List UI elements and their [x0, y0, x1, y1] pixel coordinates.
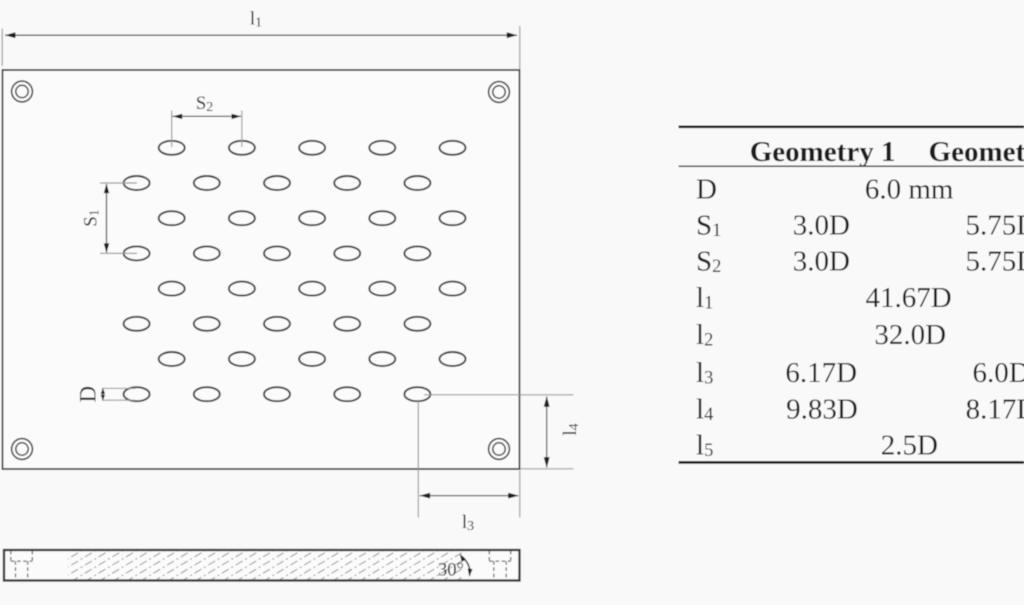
- svg-text:3.0D: 3.0D: [793, 246, 850, 278]
- svg-text:Geometry 2: Geometry 2: [929, 136, 1024, 168]
- svg-text:3.0D: 3.0D: [793, 210, 850, 242]
- svg-text:6.0 mm: 6.0 mm: [865, 174, 954, 206]
- svg-text:D: D: [696, 174, 717, 206]
- svg-text:6.0D: 6.0D: [972, 357, 1024, 389]
- svg-text:6.17D: 6.17D: [785, 357, 857, 389]
- svg-text:30°: 30°: [438, 560, 464, 580]
- svg-text:32.0D: 32.0D: [874, 319, 946, 351]
- svg-text:5.75D: 5.75D: [966, 246, 1024, 278]
- svg-text:D: D: [76, 386, 101, 403]
- svg-text:2.5D: 2.5D: [881, 430, 938, 462]
- svg-text:8.17D: 8.17D: [966, 393, 1024, 425]
- svg-text:41.67D: 41.67D: [865, 282, 951, 314]
- svg-text:5.75D: 5.75D: [966, 210, 1024, 242]
- svg-text:9.83D: 9.83D: [786, 393, 858, 425]
- svg-text:Geometry 1: Geometry 1: [750, 136, 896, 168]
